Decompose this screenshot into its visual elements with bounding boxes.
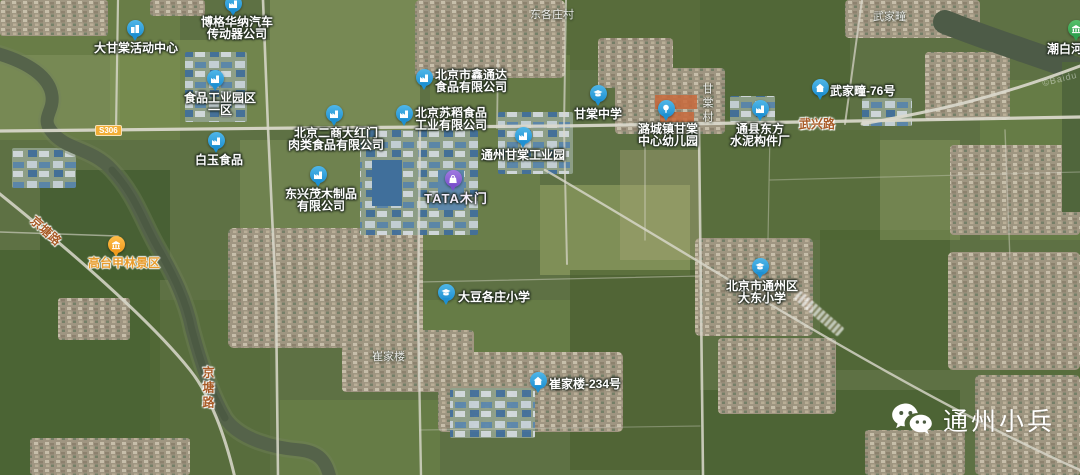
poi-label-line: 肉类食品有限公司 xyxy=(288,140,384,152)
watermark-text: 通州小兵 xyxy=(943,402,1055,438)
wechat-icon xyxy=(890,401,934,439)
factory-icon xyxy=(755,104,765,114)
poi-label: 食品工业园区一区 xyxy=(184,93,256,116)
poi-label-line: 中心幼儿园 xyxy=(638,136,698,148)
map-pin[interactable] xyxy=(207,70,224,87)
factory-icon xyxy=(518,131,528,141)
house-icon xyxy=(533,376,543,386)
map-pin[interactable] xyxy=(1068,20,1080,37)
map-pin[interactable] xyxy=(590,85,607,102)
poi-label-line: 通州甘棠工业园 xyxy=(481,150,565,162)
house-icon xyxy=(815,83,825,93)
school-icon xyxy=(593,89,603,99)
poi-label: 崔家楼-234号 xyxy=(549,379,621,391)
poi-label-line: 大东小学 xyxy=(726,293,798,305)
map-pin[interactable] xyxy=(108,236,125,253)
poi-label: TATA木门 xyxy=(424,193,488,205)
school-icon xyxy=(755,262,765,272)
map-pin[interactable] xyxy=(208,132,225,149)
poi-label-line: 工业有限公司 xyxy=(415,120,487,132)
poi-label-line: 甘棠中学 xyxy=(574,109,622,121)
map-pin[interactable] xyxy=(752,258,769,275)
factory-icon xyxy=(329,109,339,119)
poi-label: 武家疃-76号 xyxy=(830,86,895,98)
map-pin[interactable] xyxy=(326,105,343,122)
poi-label-line: 传动器公司 xyxy=(201,29,273,41)
poi-label: 潞城镇甘棠中心幼儿园 xyxy=(638,124,698,147)
poi-label: 北京苏稻食品工业有限公司 xyxy=(415,108,487,131)
map-pin[interactable] xyxy=(812,79,829,96)
poi-label: 通县东方水泥构件厂 xyxy=(730,124,790,147)
factory-icon xyxy=(419,73,429,83)
poi-label-line: 水泥构件厂 xyxy=(730,136,790,148)
poi-label: 大甘棠活动中心 xyxy=(94,43,178,55)
poi-label: 高台甲林景区 xyxy=(88,258,160,270)
poi-label-line: 大豆各庄小学 xyxy=(458,292,530,304)
poi-label: 通州甘棠工业园 xyxy=(481,150,565,162)
channel-watermark: 通州小兵 xyxy=(890,401,1055,439)
map-pin[interactable] xyxy=(658,100,675,117)
poi-label: 潮白河湿 xyxy=(1047,44,1080,56)
map-pin[interactable] xyxy=(416,69,433,86)
map-pin[interactable] xyxy=(225,0,242,12)
poi-label: 甘棠中学 xyxy=(574,109,622,121)
bag-icon xyxy=(448,174,458,184)
poi-label-line: 大甘棠活动中心 xyxy=(94,43,178,55)
map-pin[interactable] xyxy=(752,100,769,117)
factory-icon xyxy=(399,109,409,119)
poi-label: 东兴茂木制品有限公司 xyxy=(285,189,357,212)
factory-icon xyxy=(211,136,221,146)
map-pin[interactable] xyxy=(127,20,144,37)
landmark-icon xyxy=(1071,24,1080,34)
poi-label-line: 崔家楼-234号 xyxy=(549,379,621,391)
poi-label-line: 白玉食品 xyxy=(195,155,243,167)
poi-label-line: 有限公司 xyxy=(285,201,357,213)
map-pin[interactable] xyxy=(445,170,462,187)
building-icon xyxy=(130,24,140,34)
map-pin[interactable] xyxy=(530,372,547,389)
poi-label: 北京市通州区大东小学 xyxy=(726,281,798,304)
poi-label-line: 一区 xyxy=(184,105,256,117)
factory-icon xyxy=(210,74,220,84)
tree-icon xyxy=(661,104,671,114)
poi-label: 北京市鑫通达食品有限公司 xyxy=(435,70,507,93)
map-pin[interactable] xyxy=(396,105,413,122)
map-pin[interactable] xyxy=(310,166,327,183)
landmark-icon xyxy=(111,240,121,250)
poi-label: 博格华纳汽车传动器公司 xyxy=(201,17,273,40)
map-viewport[interactable]: S306京塘路京塘路武兴路东各庄村武家疃甘棠村崔家楼 博格华纳汽车传动器公司大甘… xyxy=(0,0,1080,475)
map-pin[interactable] xyxy=(515,127,532,144)
poi-label-line: 潮白河湿 xyxy=(1047,44,1080,56)
poi-label-line: TATA木门 xyxy=(424,193,488,205)
school-icon xyxy=(441,288,451,298)
factory-icon xyxy=(313,170,323,180)
poi-label-line: 高台甲林景区 xyxy=(88,258,160,270)
factory-icon xyxy=(228,0,238,9)
map-pin[interactable] xyxy=(438,284,455,301)
poi-label-line: 食品有限公司 xyxy=(435,82,507,94)
poi-label: 北京二商大红门肉类食品有限公司 xyxy=(288,128,384,151)
poi-label-line: 武家疃-76号 xyxy=(830,86,895,98)
poi-label: 大豆各庄小学 xyxy=(458,292,530,304)
poi-label: 白玉食品 xyxy=(195,155,243,167)
